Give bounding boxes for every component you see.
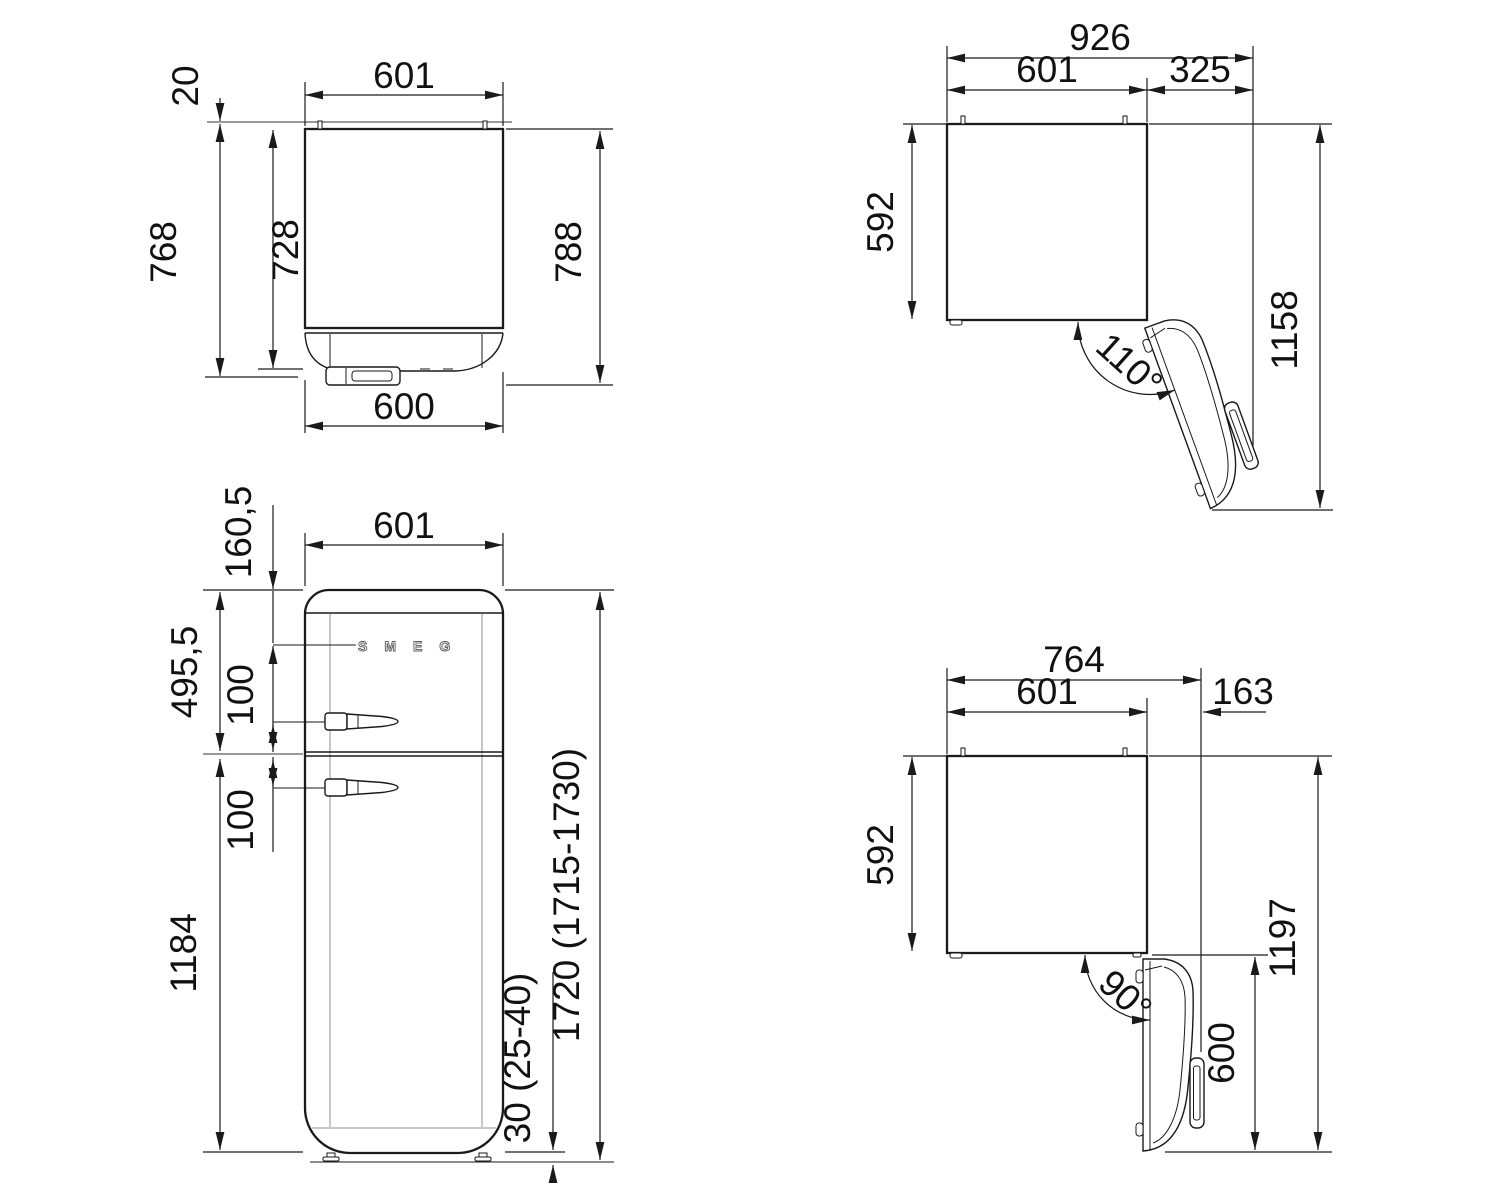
view-plan-open-90: 90° 764 601 163 592 600 1197 (860, 639, 1332, 1152)
dim-width-bottom-label: 600 (373, 386, 435, 427)
dim-depth-body-label: 728 (265, 219, 306, 281)
smeg-logo: SMEG (358, 638, 467, 654)
dim-depth-overall-label: 788 (548, 221, 589, 283)
hinge-pin (961, 748, 965, 756)
view-front: SMEG 601 160,5 495,5 100 (163, 486, 614, 1176)
dim-depth-total-label: 768 (143, 221, 184, 283)
upper-handle-block (325, 713, 347, 730)
technical-drawing-page: 601 20 768 728 788 600 (0, 0, 1500, 1200)
dim-door-side-label: 600 (1201, 1022, 1242, 1084)
hinge-pin (483, 121, 487, 129)
dim-bottom-section-label: 1184 (163, 913, 204, 993)
hinge-pin (1123, 748, 1127, 756)
foot-base (323, 1157, 339, 1161)
fridge-body-plan (305, 129, 503, 328)
hinge-pin (1123, 116, 1127, 124)
view-plan-closed: 601 20 768 728 788 600 (143, 55, 613, 433)
dim-depth-body-label: 592 (860, 191, 901, 253)
dim-door-protrusion-label: 325 (1169, 49, 1231, 90)
dim-door-protrusion-label: 163 (1212, 671, 1274, 712)
fridge-front-outline (305, 590, 503, 1153)
foot-base (475, 1157, 491, 1161)
dim-width-label: 601 (373, 505, 435, 546)
foot-stem (479, 1153, 487, 1157)
dim-width-top-label: 601 (373, 55, 435, 96)
fridge-body-plan (947, 756, 1147, 953)
dim-depth-total-label: 1197 (1262, 898, 1303, 978)
lower-handle-block (325, 779, 347, 796)
dim-handle-upper-label: 100 (220, 664, 261, 726)
dim-handle-lower-label: 100 (220, 789, 261, 851)
dim-depth-total-label: 1158 (1264, 290, 1305, 370)
dim-depth-body-label: 592 (860, 824, 901, 886)
dim-feet-label: 30 (25-40) (497, 973, 538, 1144)
door-outline (1143, 959, 1193, 1151)
door-handle-plan (326, 367, 400, 385)
fridge-body-plan (947, 124, 1147, 320)
hinge-pin (961, 116, 965, 124)
foot-tab (950, 320, 962, 325)
view-plan-open-110: 110° 926 601 325 592 1158 (860, 17, 1333, 511)
dim-wall-clearance-label: 20 (165, 65, 206, 106)
door-front-curve (305, 333, 503, 371)
door-outline (1145, 311, 1258, 509)
foot-tab (1133, 953, 1141, 957)
open-door-110 (1138, 307, 1268, 511)
dim-total-height-label: 1720 (1715-1730) (546, 748, 587, 1042)
dim-top-section-label: 495,5 (164, 626, 205, 719)
hinge-pin (318, 121, 322, 129)
dim-width-total-label: 926 (1069, 17, 1131, 58)
drawing-canvas: 601 20 768 728 788 600 (0, 0, 1500, 1200)
foot-tab (950, 953, 962, 958)
dim-width-body-label: 601 (1016, 671, 1078, 712)
dim-logo-offset-label: 160,5 (218, 486, 259, 579)
hinge-tab (1136, 1123, 1143, 1136)
dim-width-body-label: 601 (1016, 49, 1078, 90)
foot-stem (327, 1153, 335, 1157)
